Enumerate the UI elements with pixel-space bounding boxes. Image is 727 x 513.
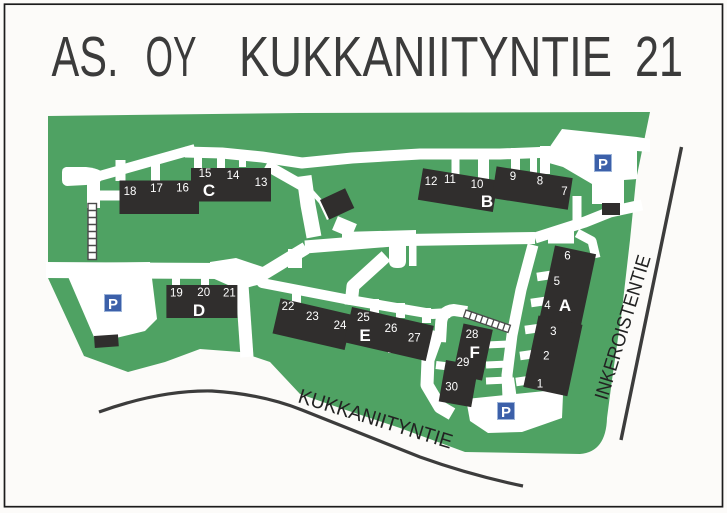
svg-text:14: 14 bbox=[227, 170, 240, 182]
svg-text:E: E bbox=[359, 326, 370, 345]
svg-text:24: 24 bbox=[334, 320, 347, 332]
svg-text:AS.: AS. bbox=[52, 25, 119, 88]
svg-text:8: 8 bbox=[537, 176, 543, 188]
svg-text:B: B bbox=[481, 192, 493, 211]
svg-text:22: 22 bbox=[282, 301, 295, 313]
svg-text:6: 6 bbox=[564, 250, 570, 262]
svg-text:13: 13 bbox=[255, 177, 268, 189]
svg-text:4: 4 bbox=[544, 300, 551, 312]
svg-text:9: 9 bbox=[510, 171, 516, 183]
svg-text:20: 20 bbox=[197, 287, 210, 299]
svg-text:2: 2 bbox=[543, 351, 549, 363]
svg-text:18: 18 bbox=[124, 186, 137, 198]
svg-text:11: 11 bbox=[444, 174, 456, 186]
svg-text:23: 23 bbox=[306, 311, 319, 323]
svg-text:3: 3 bbox=[550, 326, 556, 338]
svg-text:P: P bbox=[598, 156, 608, 173]
svg-text:10: 10 bbox=[471, 179, 484, 191]
svg-text:15: 15 bbox=[199, 168, 212, 180]
svg-text:26: 26 bbox=[385, 323, 398, 335]
svg-text:21: 21 bbox=[635, 25, 683, 88]
svg-text:F: F bbox=[470, 343, 480, 362]
svg-text:5: 5 bbox=[554, 276, 560, 288]
svg-text:7: 7 bbox=[561, 186, 567, 198]
svg-text:D: D bbox=[193, 301, 205, 320]
svg-text:25: 25 bbox=[357, 312, 370, 324]
svg-text:30: 30 bbox=[445, 382, 458, 394]
svg-text:28: 28 bbox=[466, 329, 479, 341]
svg-text:19: 19 bbox=[170, 288, 183, 300]
svg-text:C: C bbox=[203, 181, 215, 200]
svg-text:21: 21 bbox=[223, 288, 236, 300]
svg-text:1: 1 bbox=[537, 378, 543, 390]
svg-text:17: 17 bbox=[150, 183, 163, 195]
svg-text:16: 16 bbox=[176, 183, 189, 195]
svg-text:12: 12 bbox=[425, 176, 438, 188]
svg-text:P: P bbox=[108, 296, 118, 313]
svg-text:P: P bbox=[501, 404, 511, 421]
svg-text:27: 27 bbox=[408, 333, 421, 345]
svg-text:29: 29 bbox=[457, 357, 470, 369]
svg-text:A: A bbox=[559, 296, 571, 315]
svg-text:KUKKANIITYNTIE: KUKKANIITYNTIE bbox=[239, 25, 612, 88]
svg-text:OY: OY bbox=[146, 25, 197, 88]
